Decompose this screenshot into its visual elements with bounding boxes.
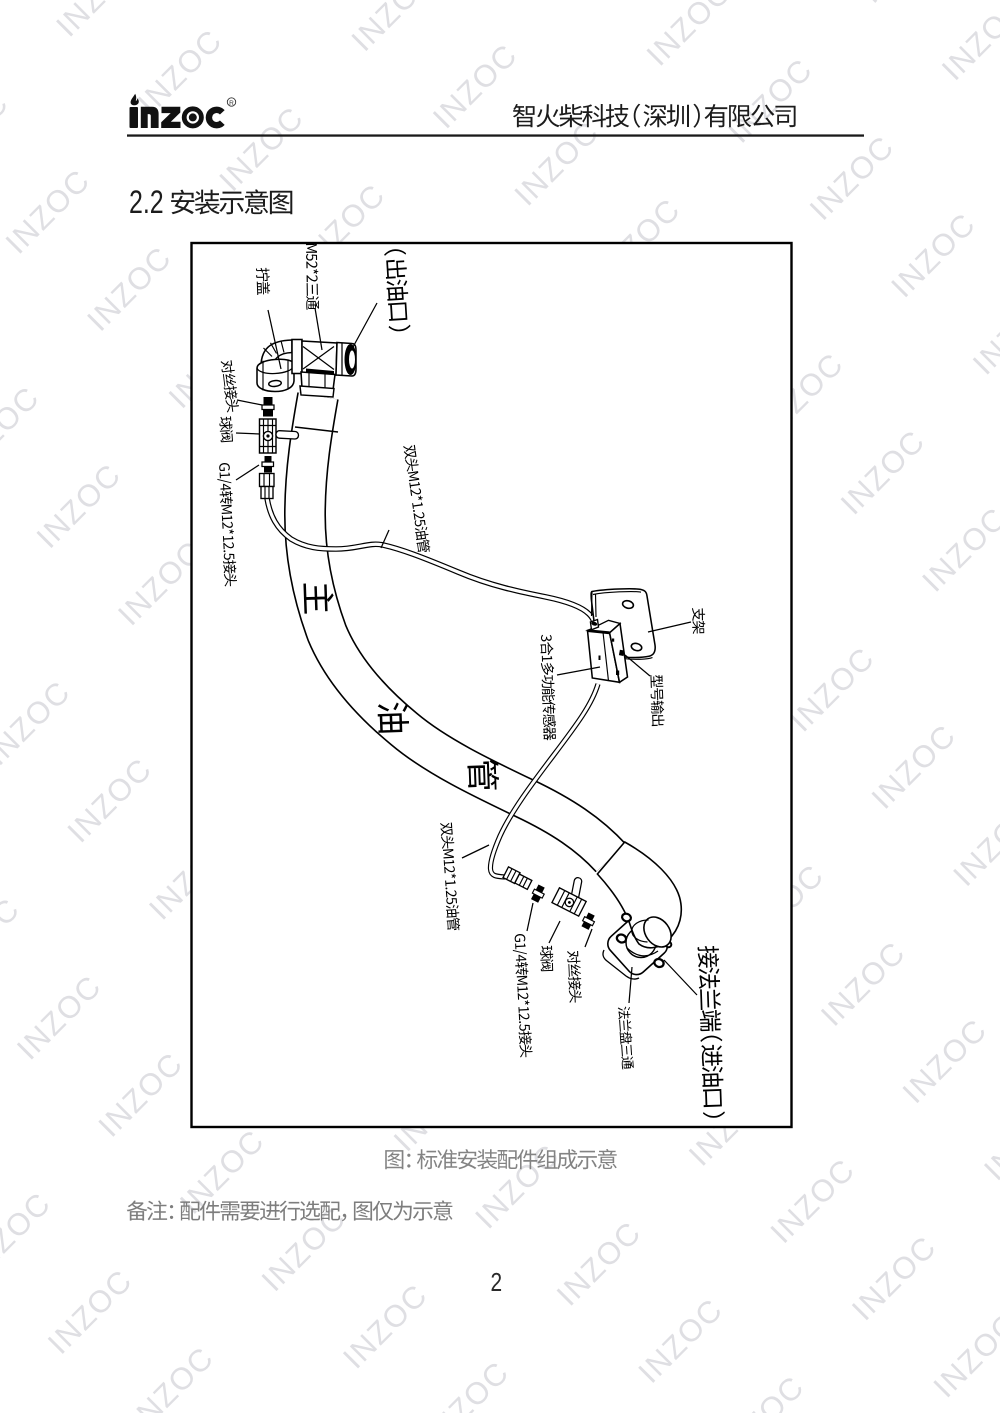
svg-text:R: R: [229, 100, 234, 107]
svg-text:2.2: 2.2: [129, 185, 164, 221]
svg-text:2: 2: [491, 1268, 503, 1296]
